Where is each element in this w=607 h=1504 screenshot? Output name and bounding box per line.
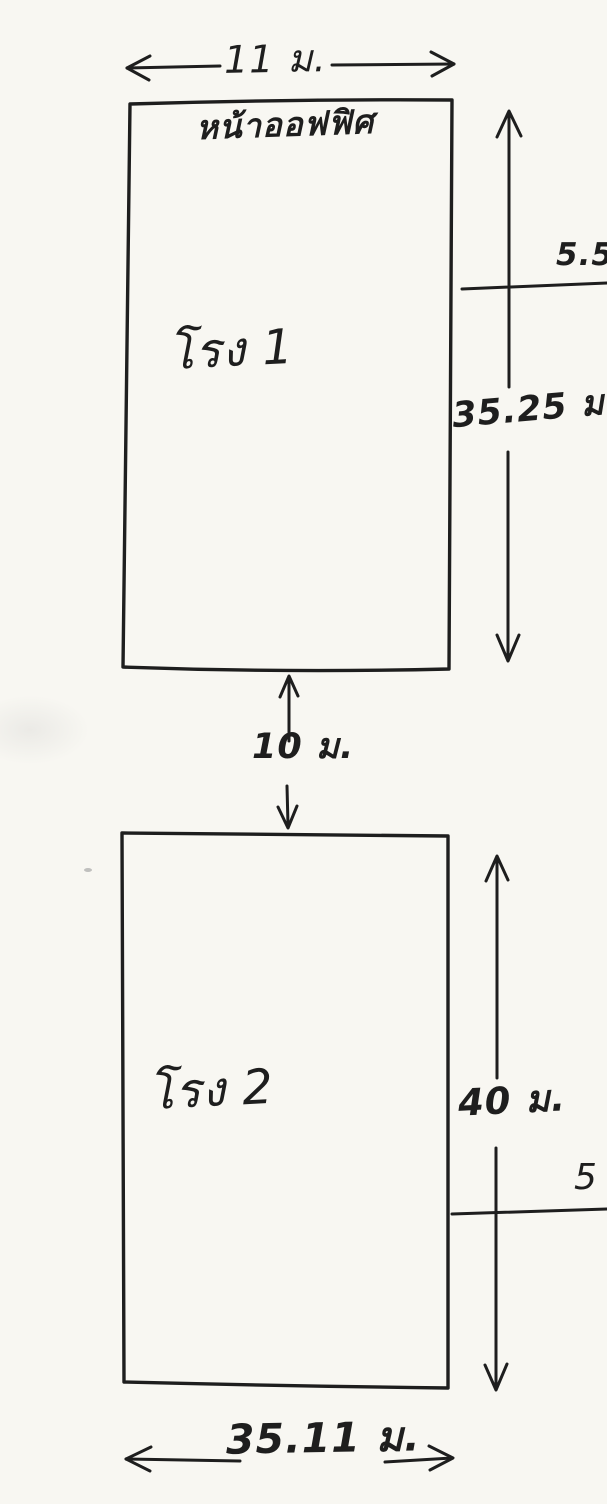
building-1-offset-line: [462, 283, 607, 289]
building-2-offset-line: [452, 1209, 607, 1214]
gap-arrow-down: [278, 786, 297, 828]
paper-speck: [84, 868, 92, 872]
building-2-height-label: 40 ม.: [457, 1079, 567, 1122]
building-2-name-label: โรง 2: [147, 1063, 275, 1118]
office-front-label: หน้าออฟฟิศ: [195, 105, 374, 144]
building-1-name-label: โรง 1: [167, 323, 295, 378]
paper-smudge: [0, 695, 90, 765]
building-1-height-arrow: [497, 111, 521, 661]
building-1-outline: [123, 100, 452, 671]
building-1-offset-label: 5.5: [556, 240, 607, 271]
bottom-width-dimension-label: 35.11 ม.: [226, 1416, 421, 1460]
hand-drawn-site-sketch: 11 ม. หน้าออฟฟิศ โรง 1 35.25 ม. 5.5 10 ม…: [0, 0, 607, 1504]
gap-dimension-label: 10 ม.: [252, 730, 354, 765]
building-2-offset-label: 5: [574, 1160, 598, 1196]
top-width-dimension-label: 11 ม.: [224, 39, 327, 79]
